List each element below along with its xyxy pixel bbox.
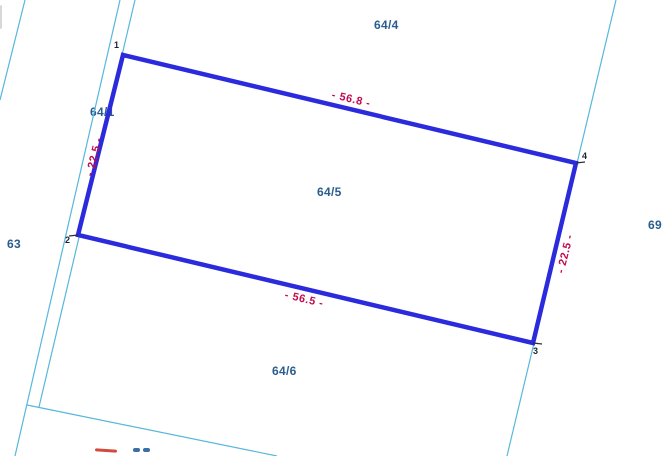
dimension-label: - 22.5 - [85, 136, 105, 177]
dimension-label: - 56.5 - [283, 290, 324, 310]
corner-point-label: 4 [582, 152, 587, 161]
dimension-label: - 22.5 - [556, 233, 576, 274]
bottom-red-text-fragment [95, 448, 117, 453]
corner-point-label: 2 [65, 236, 70, 245]
annotation-labels-layer: 1234- 56.8 -- 56.5 -- 22.5 -- 22.5 - [0, 0, 666, 456]
bottom-blue-text-fragment-a [133, 448, 140, 452]
bottom-blue-text-fragment-b [143, 448, 150, 452]
cadastral-map-viewport[interactable]: 64/464/564/664/16369 1234- 56.8 -- 56.5 … [0, 0, 666, 456]
corner-point-label: 1 [114, 41, 119, 50]
dimension-label: - 56.8 - [330, 90, 371, 110]
corner-point-label: 3 [533, 347, 538, 356]
left-gray-sliver [0, 5, 2, 29]
